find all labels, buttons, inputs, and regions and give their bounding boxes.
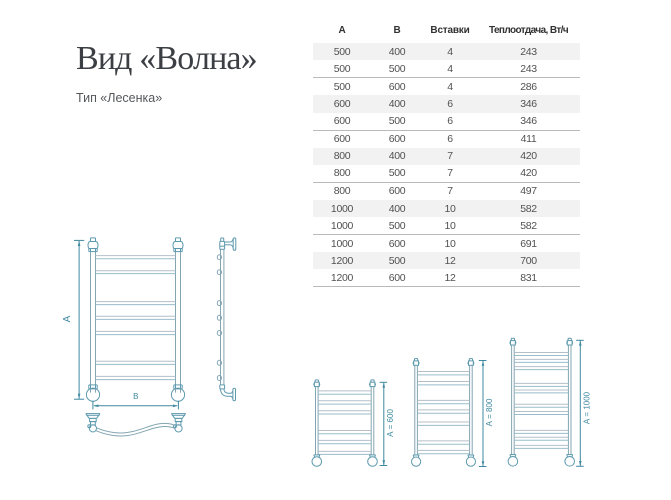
svg-text:А = 800: А = 800 xyxy=(485,398,494,426)
svg-text:А = 600: А = 600 xyxy=(386,409,395,437)
svg-text:В: В xyxy=(133,392,138,401)
svg-text:А = 1000: А = 1000 xyxy=(583,391,592,424)
svg-text:А: А xyxy=(62,315,73,322)
